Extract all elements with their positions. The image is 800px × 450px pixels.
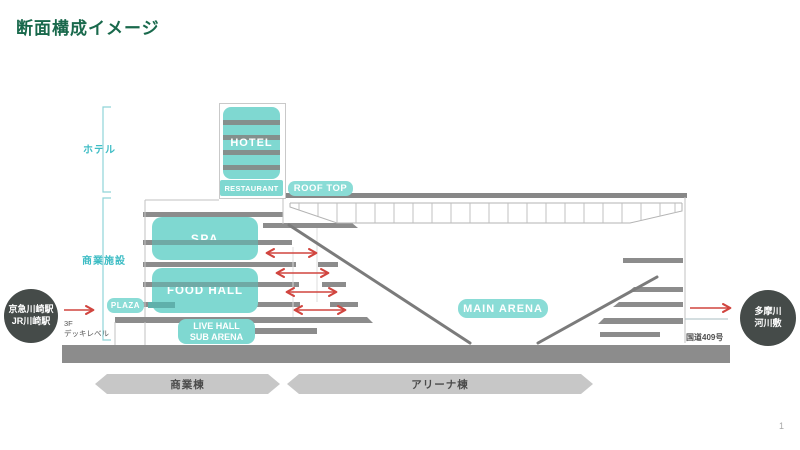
- page-title: 断面構成イメージ: [16, 14, 160, 39]
- river-access-circle: 多摩川 河川敷: [740, 290, 796, 346]
- river-label-line2: 河川敷: [754, 318, 781, 330]
- deck-level-line1: 3F: [64, 319, 109, 329]
- arena-floor-slab: [598, 318, 683, 324]
- main-arena-label: MAIN ARENA: [463, 303, 543, 315]
- slab-over-spa: [152, 240, 258, 245]
- station-label-line2: JR川崎駅: [12, 316, 51, 328]
- arena-wing-banner: アリーナ棟: [287, 374, 593, 394]
- ground-slab: [62, 345, 730, 363]
- commercial-wing-label: 商業棟: [170, 377, 205, 392]
- plaza-deck-link: [148, 302, 175, 308]
- restaurant-label: RESTAURANT: [224, 184, 278, 193]
- station-access-circle: 京急川崎駅 JR川崎駅: [4, 289, 58, 343]
- deck-level-note: 3F デッキレベル: [64, 319, 109, 339]
- live-hall-label-line1: LIVE HALL: [193, 321, 240, 332]
- slab-over-food-hall: [152, 282, 258, 287]
- restaurant-zone: RESTAURANT: [220, 180, 283, 196]
- hotel-section-label: ホテル: [83, 141, 116, 156]
- live-hall-zone: LIVE HALL SUB ARENA: [178, 319, 255, 344]
- page-number: 1: [779, 421, 784, 431]
- roof-truss-verticals: [299, 203, 675, 223]
- commercial-wing-banner: 商業棟: [95, 374, 280, 394]
- slide-canvas: 断面構成イメージ 1 SPA FOOD HALL LIVE HALL SUB A…: [0, 0, 800, 450]
- stair-landing: [322, 282, 346, 287]
- route-409-label: 国道409号: [686, 333, 723, 344]
- plaza-label: PLAZA: [111, 301, 140, 310]
- river-label-line1: 多摩川: [754, 306, 781, 318]
- arena-floor-slab: [600, 332, 660, 337]
- arena-wing-label: アリーナ棟: [411, 377, 469, 392]
- spa-zone: SPA: [152, 217, 258, 260]
- hotel-label: HOTEL: [230, 137, 272, 149]
- main-arena-pill: MAIN ARENA: [458, 299, 548, 318]
- floor-slab: [143, 262, 296, 267]
- arena-floor-slab: [628, 287, 683, 292]
- commercial-section-label: 商業施設: [82, 252, 126, 267]
- deck-level-line2: デッキレベル: [64, 329, 109, 339]
- arena-floor-slab: [623, 258, 683, 263]
- floor-slab: [263, 223, 358, 228]
- live-hall-label-line2: SUB ARENA: [190, 332, 243, 343]
- stair-landing: [330, 302, 358, 307]
- station-label-line1: 京急川崎駅: [8, 304, 53, 316]
- roof-top-pill: ROOF TOP: [288, 181, 353, 196]
- roof-top-label: ROOF TOP: [294, 183, 347, 194]
- arena-floor-slab: [613, 302, 683, 307]
- hotel-zone: HOTEL: [223, 107, 280, 179]
- floor-slab: [255, 328, 317, 334]
- stair-landing: [318, 262, 338, 267]
- roof-truss-band: [290, 203, 682, 223]
- plaza-pill: PLAZA: [107, 298, 144, 313]
